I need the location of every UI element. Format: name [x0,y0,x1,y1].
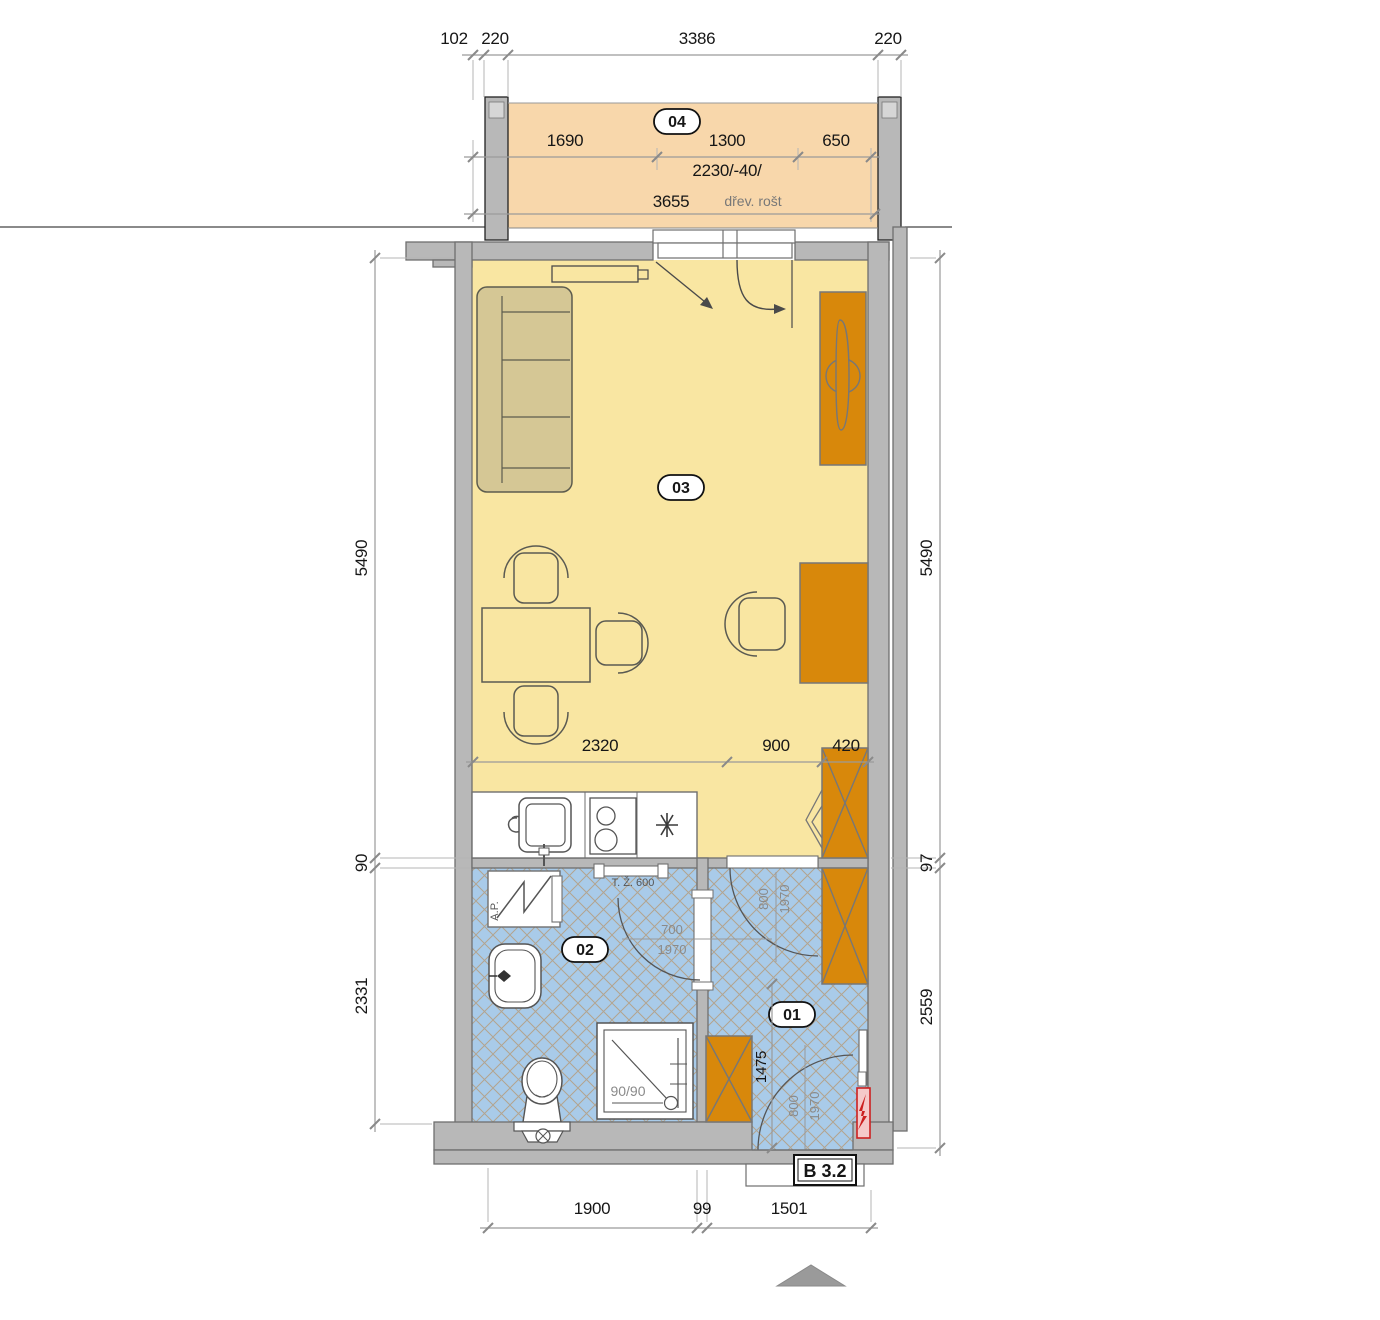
dim-right-1: 5490 [917,540,936,577]
chair-seat-right [596,621,642,665]
south-wall-left [434,1122,752,1150]
dim-bottom-3: 1501 [771,1199,808,1218]
dim-left-2: 90 [352,854,371,872]
towel-rail-end-right [658,864,668,878]
dim-room-3: 420 [832,736,859,755]
toilet-bowl-inner [527,1061,557,1097]
kitchen-bath-wall-right [818,858,868,868]
entrance-threshold-hatch [752,1122,853,1152]
towel-rail-end-left [594,864,604,878]
washing-machine-hose [552,876,562,922]
room-number-living: 03 [672,480,690,497]
sofa [477,287,572,492]
partition-cap-right [882,102,897,118]
dim-hall-depth: 1475 [753,1051,770,1083]
balcony-partition-left [485,97,508,240]
shower-size-label: 90/90 [610,1083,645,1099]
dim-balcony-3: 650 [822,131,849,150]
wood-grate-note: dřev. rošt [724,193,781,209]
dim-right-3: 2559 [917,989,936,1026]
west-wall [455,242,472,1150]
east-wall-inner [868,242,889,1150]
entrance-door-width: 800 [786,1095,801,1117]
dim-balcony-1: 1690 [547,131,584,150]
window-frame-outer [653,230,795,243]
dim-room-1: 2320 [582,736,619,755]
wardrobe-board [836,320,849,430]
faucet-handle [539,848,549,855]
wardrobe-hall [822,868,868,984]
room-number-hall: 01 [783,1007,801,1024]
chair-seat-bottom [514,686,558,736]
unit-tag: B 3.2 [794,1155,856,1185]
sofa-body [477,287,572,492]
chair-seat-top [514,553,558,603]
desk [800,563,868,683]
dim-bottom-2: 99 [693,1199,711,1218]
wardrobe-entry [706,1036,752,1122]
dim-right-2: 97 [917,854,936,872]
shower: 90/90 [597,1023,693,1119]
bath-door-height: 1970 [658,942,687,957]
towel-rail [598,866,664,876]
unit-label: B 3.2 [803,1161,846,1181]
east-wall-outer [893,227,907,1131]
living-hall-door-height: 1970 [777,885,792,914]
dim-top-4: 220 [874,29,901,48]
dim-bottom-1: 1900 [574,1199,611,1218]
living-hall-door-opening [727,856,818,868]
towel-rail-label: T. Ž. 600 [612,876,655,889]
tv-sideboard [552,266,638,282]
entrance-door-height: 1970 [807,1092,822,1121]
desk-chair-seat [739,598,785,650]
room-number-bath: 02 [576,942,594,959]
partition-cap-left [489,102,504,118]
floor-plan-drawing: T. Ž. 600 A.P. 90/90 [0,0,1380,1320]
dim-left-3: 2331 [352,978,371,1015]
bath-door-width: 700 [661,922,683,937]
dim-left-1: 5490 [352,540,371,577]
dim-balcony-total: 3655 [653,192,690,211]
dim-top-3: 3386 [679,29,716,48]
north-wall-left [406,242,653,260]
dim-balcony-window: 2230/-40/ [692,161,762,180]
entrance-door-handle [858,1072,866,1086]
living-hall-door-width: 800 [756,888,771,910]
floor-plan-page: T. Ž. 600 A.P. 90/90 [0,0,1380,1320]
tv-sideboard-knob [638,270,648,279]
dim-room-2: 900 [762,736,789,755]
sink-basin [526,804,565,846]
dim-balcony-2: 1300 [709,131,746,150]
bath-door-jamb-bottom [692,982,713,990]
wardrobe-tall [820,292,866,465]
room-number-balcony: 04 [668,114,686,131]
washing-machine-label: A.P. [489,901,501,920]
window-frame-inner [658,243,792,258]
dim-top-1: 102 [440,29,467,48]
balcony-partition-right [878,97,901,240]
north-arrow-icon [777,1265,845,1286]
shower-drain [665,1097,678,1110]
kitchenette [472,792,697,866]
dim-top-2: 220 [481,29,508,48]
dining-table [482,608,590,682]
bath-door-jamb-top [692,890,713,898]
